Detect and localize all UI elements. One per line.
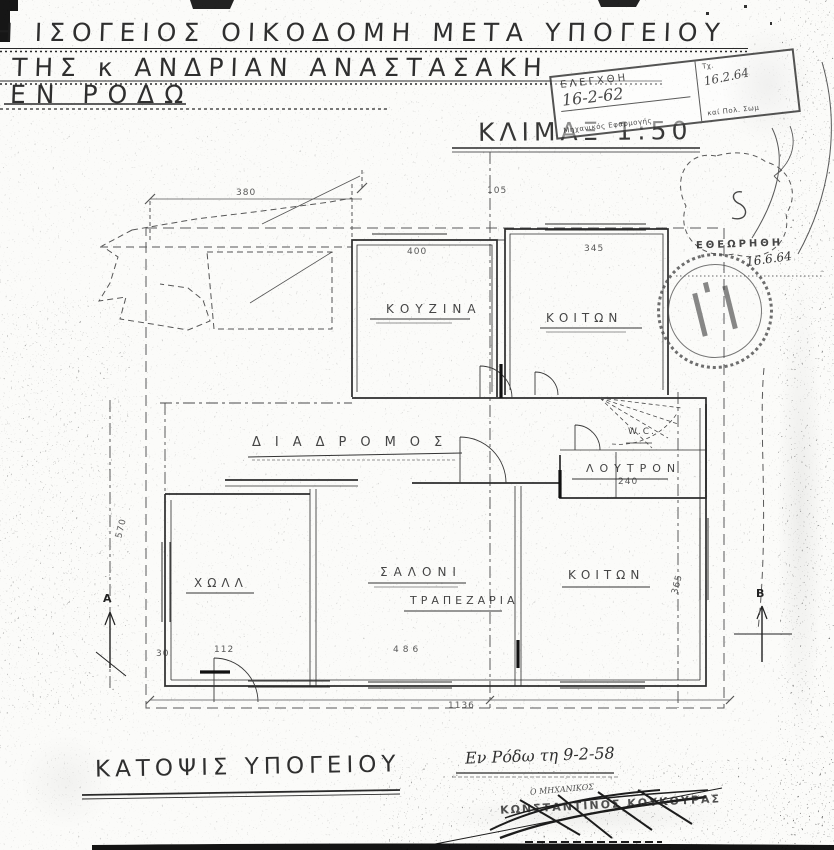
dim-porch-small: 30 (156, 650, 169, 659)
approval-stamp-right: Τχ. 16.2.64 καί Πολ. Σωμ (695, 50, 798, 121)
room-label-living: ΣΑΛΟΝΙ (380, 566, 462, 578)
dim-site-top: 380 (236, 189, 256, 198)
room-label-wc: W.C. (628, 428, 656, 437)
room-label-hall: ΧΩΛΛ (194, 577, 248, 589)
section-marker-b: B (756, 588, 764, 599)
dim-bottom-total: 1136 (448, 702, 475, 711)
project-title-line2: ΤΗΣ κ ΑΝΔΡΙΑΝ ΑΝΑΣΤΑΣΑΚΗ (12, 55, 550, 80)
dim-porch: 112 (214, 646, 234, 655)
room-label-dining: ΤΡΑΠΕΖΑΡΙΑ (410, 595, 519, 606)
dim-kitchen-top: 400 (407, 248, 427, 257)
dim-dining-bottom: 486 (393, 646, 422, 655)
round-stamp-emblem (692, 285, 738, 336)
drawing-sheet: Η ΙΣΟΓΕΙΟΣ ΟΙΚΟΔΟΜΗ ΜΕΤΑ ΥΠΟΓΕΙΟΥ ΤΗΣ κ … (0, 0, 834, 850)
approval-stamp-note-right: καί Πολ. Σωμ (707, 104, 760, 118)
paper-noise (0, 0, 834, 850)
dim-bedroom-top: 345 (584, 245, 604, 254)
dim-top-mid: 105 (487, 187, 507, 196)
room-label-kitchen: ΚΟΥΖΙΝΑ (386, 303, 482, 315)
room-label-bedroom-top: ΚΟΙΤΩΝ (546, 312, 622, 324)
room-label-bedroom-bottom: ΚΟΙΤΩΝ (568, 569, 644, 581)
drawing-title: ΚΑΤΟΨΙΣ ΥΠΟΓΕΙΟΥ (95, 753, 401, 781)
plan-linework (0, 0, 834, 850)
room-label-bathroom: ΛΟΥΤΡΟΝ (586, 463, 681, 474)
dim-bathroom: 240 (618, 478, 638, 487)
section-marker-a: A (103, 593, 112, 604)
room-label-corridor: ΔΙΑΔΡΟΜΟΣ (252, 436, 456, 449)
project-title-line1: Η ΙΣΟΓΕΙΟΣ ΟΙΚΟΔΟΜΗ ΜΕΤΑ ΥΠΟΓΕΙΟΥ (0, 20, 727, 45)
project-title-line3: ΕΝ ΡΟΔΩ (10, 82, 194, 107)
